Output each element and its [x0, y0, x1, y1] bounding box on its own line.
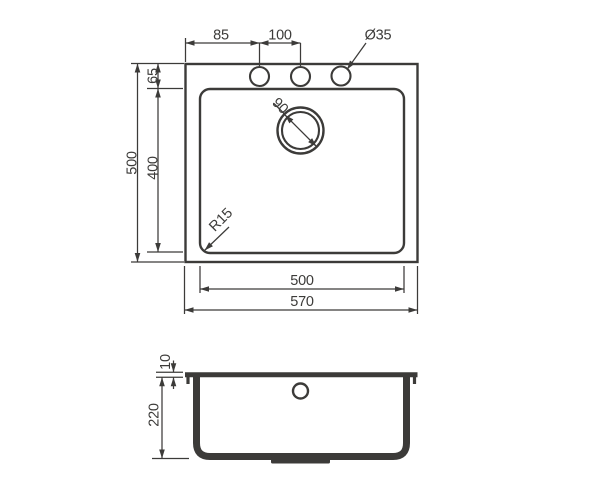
dimension-label-hole-spacing: 100 [268, 28, 292, 44]
technical-drawing: 85 100 Ø35 500 65 400 [0, 0, 600, 496]
dimension-label-corner-radius: R15 [206, 205, 236, 235]
dimension-bowl-height: 400 [146, 89, 184, 253]
dimension-line-90 [285, 115, 317, 147]
dimension-label-outer-height: 500 [125, 151, 141, 175]
dimension-label-hole-offset: 85 [213, 28, 229, 44]
dimension-label-bowl-depth: 220 [147, 403, 163, 427]
bottom-drain-boss [271, 457, 330, 464]
top-view: 85 100 Ø35 500 65 400 [125, 28, 418, 315]
overflow-hole [293, 384, 308, 399]
side-view: 10 220 [147, 354, 418, 463]
faucet-hole-1 [250, 67, 269, 86]
dimension-hole-offset-and-spacing: 85 100 [186, 28, 301, 67]
sink-drawing-canvas: 85 100 Ø35 500 65 400 [0, 0, 600, 496]
dimension-label-hole-diameter: Ø35 [365, 28, 392, 44]
dimension-label-outer-width: 570 [290, 294, 314, 310]
dimension-label-bowl-height: 400 [146, 156, 162, 180]
bowl-outline [200, 89, 404, 253]
bowl-section-outline [197, 376, 407, 457]
dimension-edge-to-holes: 65 [146, 64, 162, 89]
dimension-label-rim-thickness: 10 [158, 354, 174, 370]
dimension-label-drain-diameter: 90 [269, 95, 292, 118]
dimension-rim-thickness: 10 [156, 354, 183, 389]
leader-line [347, 43, 366, 70]
dimension-label-bowl-width: 500 [290, 273, 314, 289]
dimension-drain-diameter: 90 [269, 95, 317, 147]
dimension-bowl-depth: 220 [147, 377, 190, 458]
dimension-label-edge-to-holes: 65 [146, 68, 162, 84]
faucet-hole-2 [291, 67, 310, 86]
dimension-bowl-width: 500 [200, 266, 404, 293]
dimension-corner-radius: R15 [205, 205, 237, 250]
